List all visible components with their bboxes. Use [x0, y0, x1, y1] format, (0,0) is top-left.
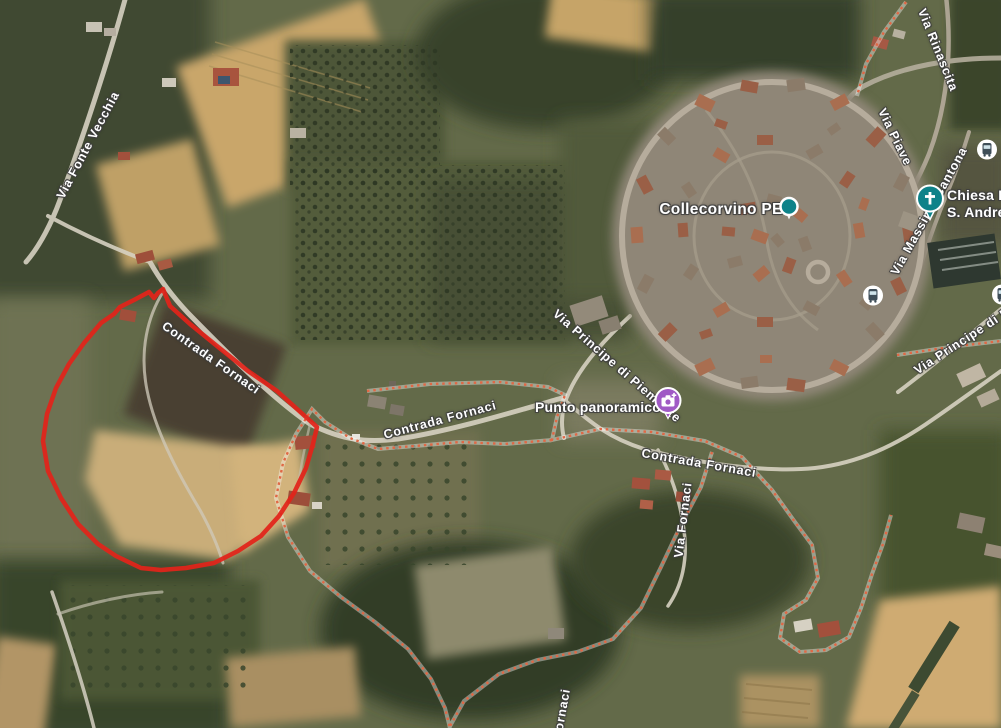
bus-stop-icon-partial[interactable] — [991, 284, 1001, 311]
town — [612, 71, 932, 401]
church-cross-icon[interactable] — [915, 184, 945, 227]
poi-label-chiesa-line2: S. Andrea — [947, 204, 1001, 221]
poi-label-chiesa[interactable]: Chiesa P S. Andrea — [947, 187, 1001, 221]
panoramic-camera-icon[interactable] — [653, 387, 683, 426]
poi-label-chiesa-line1: Chiesa P — [947, 187, 1001, 204]
place-dot-icon[interactable] — [777, 197, 801, 228]
map-viewport[interactable]: Via Fonte Vecchia Contrada Fornaci Contr… — [0, 0, 1001, 728]
poi-label-punto-panoramico[interactable]: Punto panoramico — [535, 399, 661, 415]
bus-stop-icon[interactable] — [976, 139, 998, 166]
bus-stop-icon[interactable] — [862, 285, 884, 312]
satellite-imagery — [0, 0, 1001, 728]
city-label-collecorvino[interactable]: Collecorvino PE — [659, 201, 782, 219]
